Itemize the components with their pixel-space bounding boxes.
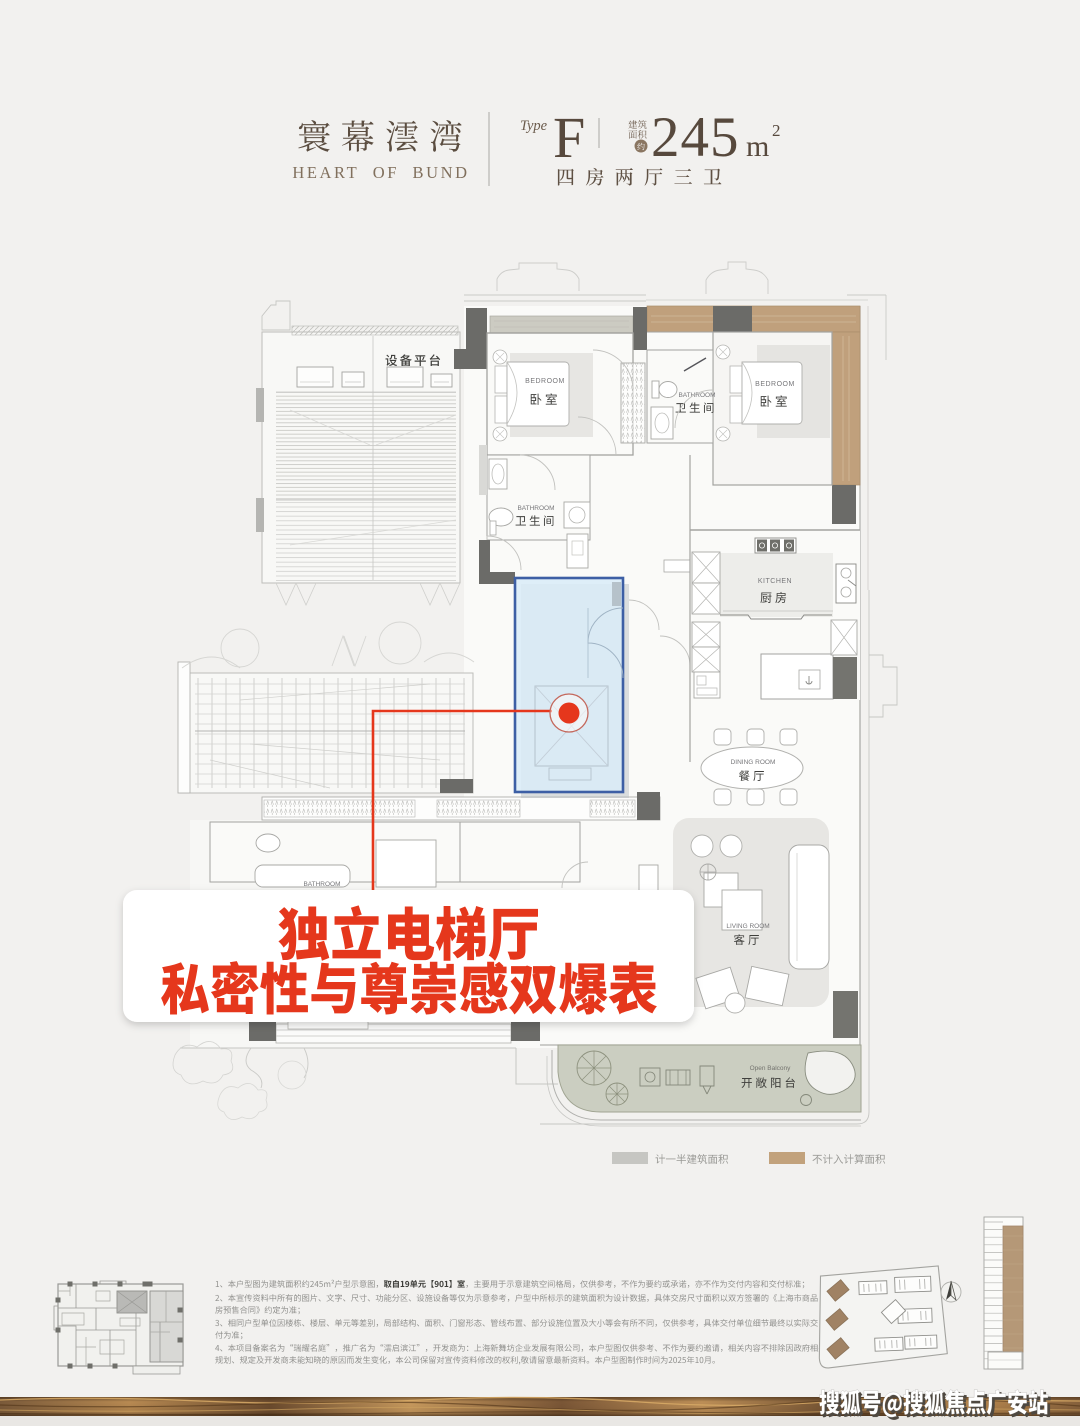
svg-text:m: m xyxy=(746,130,769,163)
svg-text:F: F xyxy=(553,105,585,170)
svg-text:HEART OF BUND: HEART OF BUND xyxy=(292,163,469,182)
svg-text:Open Balcony: Open Balcony xyxy=(750,1065,792,1072)
svg-text:2: 2 xyxy=(772,121,781,140)
svg-text:LIVING ROOM: LIVING ROOM xyxy=(726,923,769,930)
svg-text:BATHROOM: BATHROOM xyxy=(517,505,554,512)
svg-text:BATHROOM: BATHROOM xyxy=(303,881,340,888)
svg-text:BEDROOM: BEDROOM xyxy=(525,378,565,385)
svg-text:BEDROOM: BEDROOM xyxy=(755,381,795,388)
svg-text:Type: Type xyxy=(520,118,548,134)
svg-text:DINING ROOM: DINING ROOM xyxy=(731,759,776,766)
svg-text:245: 245 xyxy=(651,106,740,169)
svg-text:KITCHEN: KITCHEN xyxy=(758,578,792,585)
